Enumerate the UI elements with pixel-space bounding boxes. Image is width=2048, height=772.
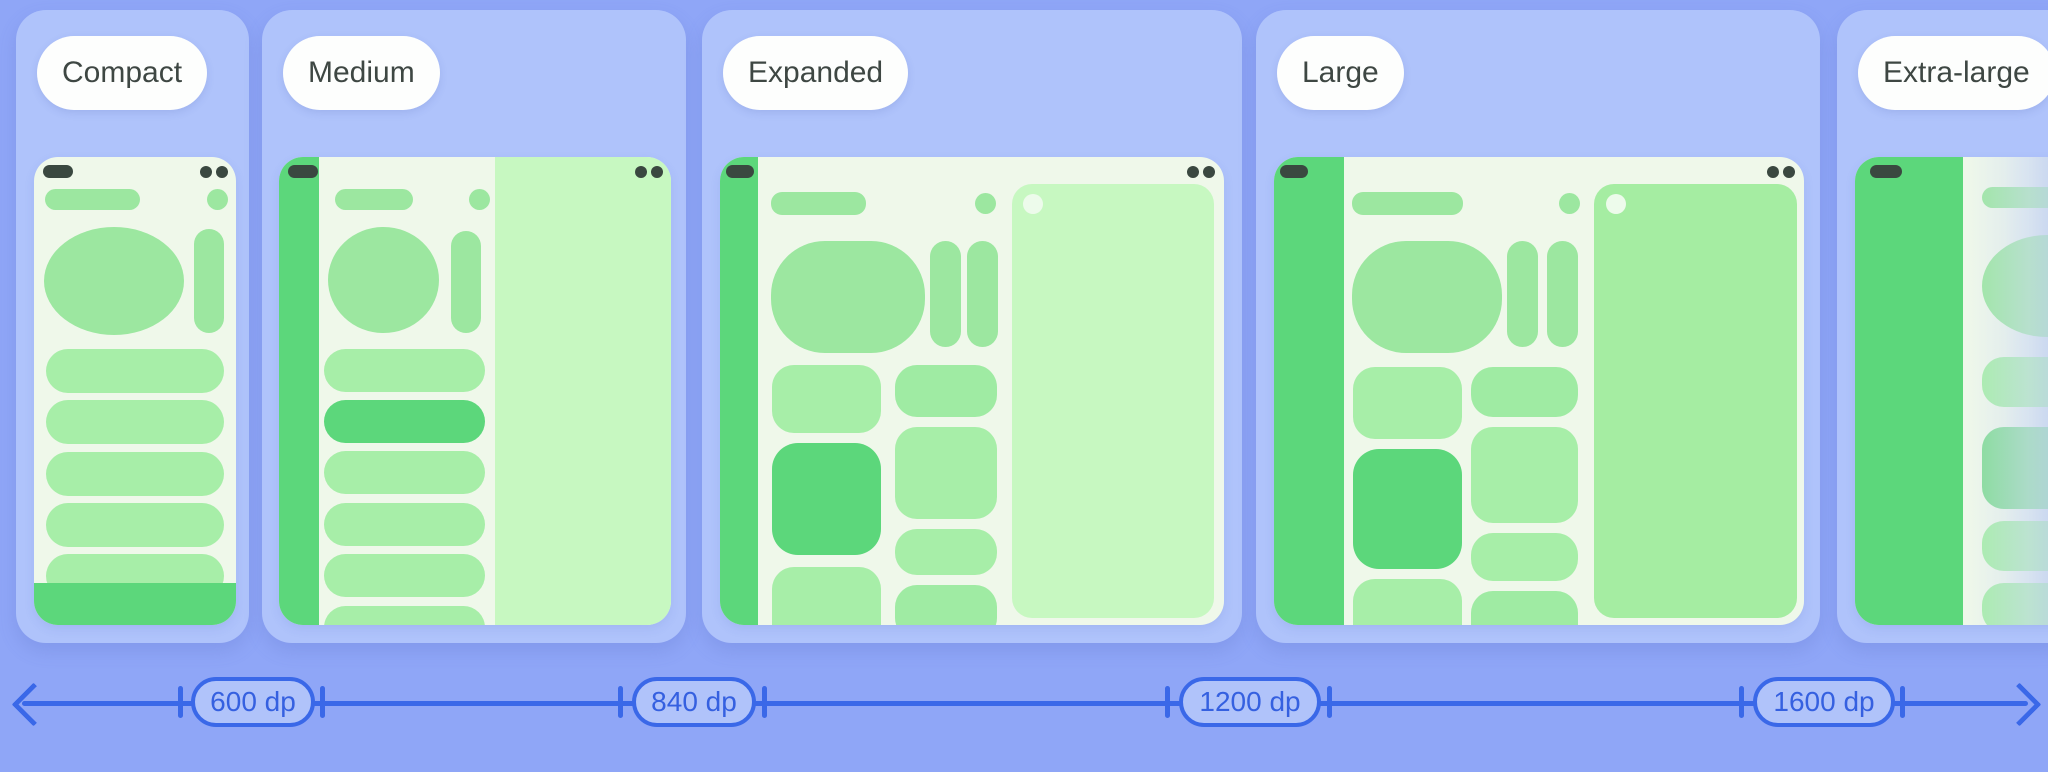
bottom-bar [34,583,236,625]
status-bar-pill [1280,165,1308,178]
grid-card [1471,591,1578,625]
breakpoint-badge-840dp: 840 dp [632,677,756,727]
list-item-pill [46,503,224,547]
app-bar-pill [335,189,413,210]
size-class-card-large: Large [1256,10,1820,643]
grid-card [895,585,997,625]
grid-card [1353,579,1462,625]
fade-overlay [1967,157,2048,625]
hero-side-pill [194,229,224,333]
breakpoint-label: 600 dp [210,686,296,718]
hero-blob [44,227,184,335]
ruler-tick [1327,686,1332,718]
pane-highlight-dot [1606,194,1626,214]
size-class-chip-extra-large: Extra-large [1858,36,2048,110]
phone-mockup [34,157,236,625]
grid-card [772,365,881,433]
ruler-tick [1165,686,1170,718]
pane-highlight-dot [1023,194,1043,214]
size-class-chip-medium: Medium [283,36,440,110]
window-size-classes-diagram: Compact Medium [0,0,2048,772]
grid-card [895,365,997,417]
desktop-mockup [720,157,1224,625]
action-circle [469,189,490,210]
status-bar-pill [43,165,73,178]
list-item-pill [324,606,485,625]
camera-dot [216,166,228,178]
nav-rail [720,157,758,625]
grid-card [1471,427,1578,523]
size-class-chip-large: Large [1277,36,1404,110]
grid-card [895,529,997,575]
hero-side-pill [1547,241,1578,347]
nav-drawer [1855,157,1963,625]
grid-card [772,567,881,625]
size-class-card-extra-large: Extra-large [1837,10,2048,643]
list-item-pill [324,451,485,494]
size-class-chip-expanded: Expanded [723,36,908,110]
camera-dot [635,166,647,178]
status-bar-pill [1870,165,1902,178]
detail-pane [495,157,671,625]
grid-card [1353,367,1462,439]
grid-card-selected [1353,449,1462,569]
hero-blob [1352,241,1502,353]
ruler-tick [762,686,767,718]
nav-rail [1274,157,1344,625]
breakpoint-badge-1600dp: 1600 dp [1753,677,1895,727]
hero-blob [771,241,925,353]
size-class-card-medium: Medium [262,10,686,643]
action-circle [1559,193,1580,214]
grid-card [1471,367,1578,417]
list-item-pill [46,400,224,444]
grid-card-selected [772,443,881,555]
app-bar-pill [771,192,866,215]
desktop-mockup-fading [1855,157,2048,625]
camera-dot [200,166,212,178]
breakpoint-label: 1600 dp [1773,686,1874,718]
camera-dot [651,166,663,178]
ruler-tick [178,686,183,718]
hero-side-pill [930,241,961,347]
status-bar-pill [288,165,318,178]
breakpoint-ruler: 600 dp 840 dp 1200 dp 1600 dp [0,655,2048,772]
desktop-mockup [1274,157,1804,625]
app-bar-pill [45,189,140,210]
breakpoint-badge-1200dp: 1200 dp [1179,677,1321,727]
list-item-pill-selected [324,400,485,443]
breakpoint-label: 840 dp [651,686,737,718]
ruler-arrow-right-icon [1998,683,2042,727]
ruler-arrow-left-icon [12,683,56,727]
ruler-tick [1739,686,1744,718]
size-class-chip-compact: Compact [37,36,207,110]
nav-rail [279,157,319,625]
list-item-pill [324,554,485,597]
hero-side-pill [1507,241,1538,347]
breakpoint-badge-600dp: 600 dp [191,677,315,727]
size-class-label: Large [1302,56,1379,90]
grid-card [1471,533,1578,581]
action-circle [207,189,228,210]
app-bar-pill [1352,192,1463,215]
grid-card [895,427,997,519]
status-bar-pill [726,165,754,178]
hero-side-pill [451,231,481,333]
hero-side-pill [967,241,998,347]
size-class-label: Medium [308,56,415,90]
list-item-pill [324,503,485,546]
detail-pane [1594,184,1797,618]
list-item-pill [46,452,224,496]
camera-dot [1187,166,1199,178]
camera-dot [1767,166,1779,178]
camera-dot [1203,166,1215,178]
ruler-tick [1900,686,1905,718]
action-circle [975,193,996,214]
ruler-tick [618,686,623,718]
size-class-card-expanded: Expanded [702,10,1242,643]
detail-pane [1012,184,1214,618]
ruler-tick [320,686,325,718]
list-item-pill [46,349,224,393]
breakpoint-label: 1200 dp [1199,686,1300,718]
list-item-pill [324,349,485,392]
size-class-label: Expanded [748,56,883,90]
size-class-label: Compact [62,56,182,90]
size-class-card-compact: Compact [16,10,249,643]
camera-dot [1783,166,1795,178]
tablet-mockup [279,157,671,625]
size-class-label: Extra-large [1883,56,2030,90]
hero-blob [328,227,439,333]
